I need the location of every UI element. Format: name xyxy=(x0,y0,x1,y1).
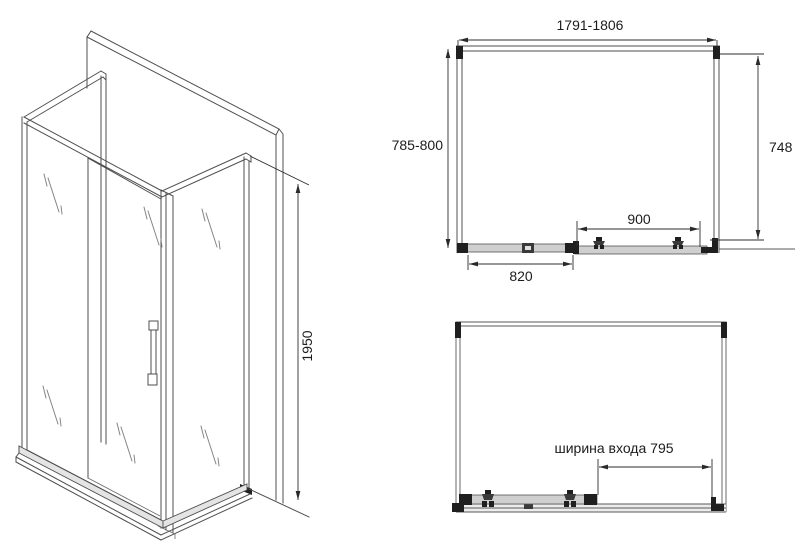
right-side-panel xyxy=(162,153,252,495)
shower-enclosure-drawing: 1950 xyxy=(0,0,800,554)
plan-view: 1791-1806 785-800 748 900 820 xyxy=(392,17,795,284)
plan-fixed-panel xyxy=(457,243,575,253)
entrance-dimension: ширина входа 795 xyxy=(554,440,712,497)
plan-fixed-panel-label: 820 xyxy=(509,268,533,284)
front-frame xyxy=(455,322,727,512)
plan-width-label: 1791-1806 xyxy=(557,17,624,33)
glass-reflection-marks xyxy=(43,174,220,466)
isometric-view: 1950 xyxy=(16,31,315,540)
plan-right-depth-label: 748 xyxy=(769,139,793,155)
entrance-width-label: ширина входа 795 xyxy=(554,440,673,456)
back-wall-panel xyxy=(87,31,283,503)
base-tray xyxy=(16,446,309,540)
plan-left-depth-label: 785-800 xyxy=(392,137,444,153)
height-dimension-label: 1950 xyxy=(299,330,315,361)
plan-glass-walls xyxy=(456,46,720,253)
plan-dimensions: 1791-1806 785-800 748 900 820 xyxy=(392,17,793,284)
plan-door-width-label: 900 xyxy=(627,211,651,227)
door-handle xyxy=(148,321,158,385)
left-side-panel xyxy=(24,71,106,444)
front-view: ширина входа 795 xyxy=(452,322,727,512)
technical-drawing-page: 1950 xyxy=(0,0,800,554)
